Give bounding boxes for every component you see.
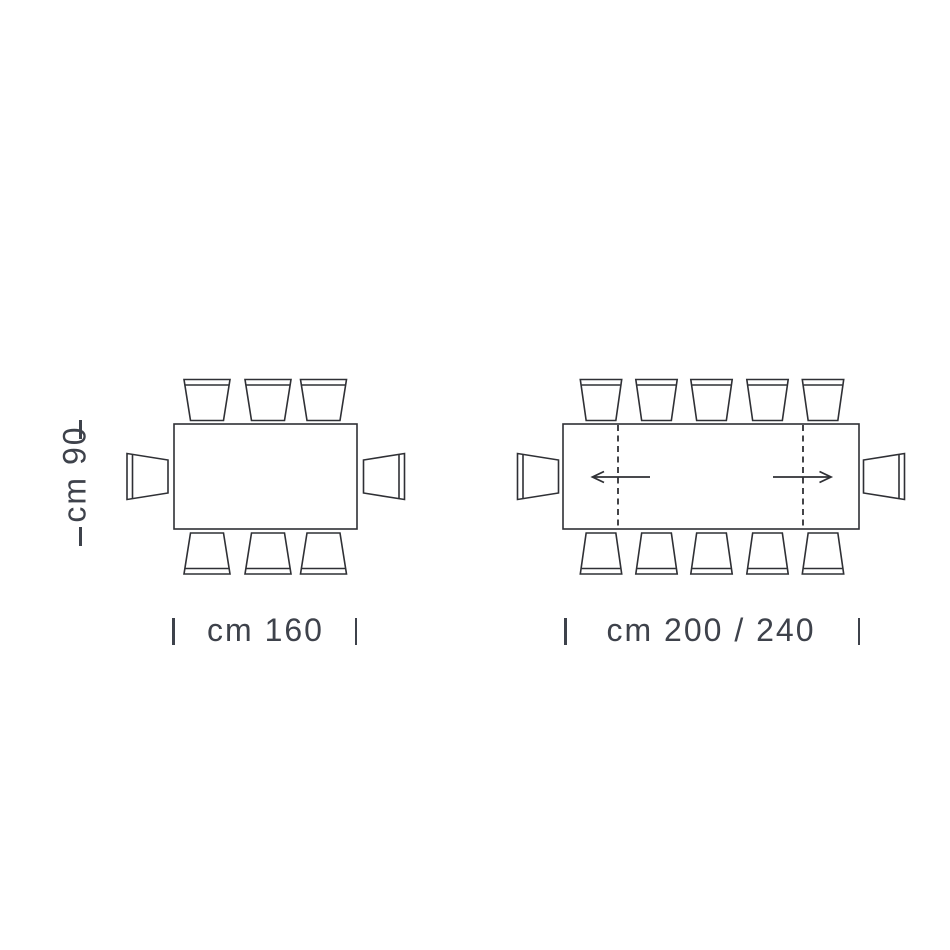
table-160-width-label: cm 160 [174,612,357,649]
chair-icon [636,380,677,421]
dimension-tick [79,527,82,546]
chair-icon [301,380,347,421]
table-200-240-group [518,380,905,575]
chair-icon [864,454,905,500]
chair-icon [691,380,732,421]
chair-icon [691,533,732,574]
chair-icon [747,380,788,421]
chair-icon [802,533,843,574]
extension-arrow-right-icon [773,472,831,483]
table-200-240-width-label: cm 200 / 240 [563,612,859,649]
chair-icon [580,380,621,421]
dimension-tick [858,618,861,645]
chair-icon [580,533,621,574]
tables-plan-view [0,0,950,950]
extension-arrow-left-icon [593,472,651,483]
chair-icon [127,454,168,500]
chair-icon [184,533,230,574]
table-160-top [174,424,357,529]
chair-icon [802,380,843,421]
chair-icon [245,533,291,574]
chair-icon [747,533,788,574]
chair-icon [518,454,559,500]
chair-icon [636,533,677,574]
dimension-tick [355,618,358,645]
chair-icon [245,380,291,421]
table-160-group [127,380,405,575]
chair-icon [364,454,405,500]
depth-dimension-label: cm 90 [55,404,95,545]
chair-icon [184,380,230,421]
chair-icon [301,533,347,574]
table-dimension-diagram: cm 90 cm 160 cm 200 / 240 [0,0,950,950]
